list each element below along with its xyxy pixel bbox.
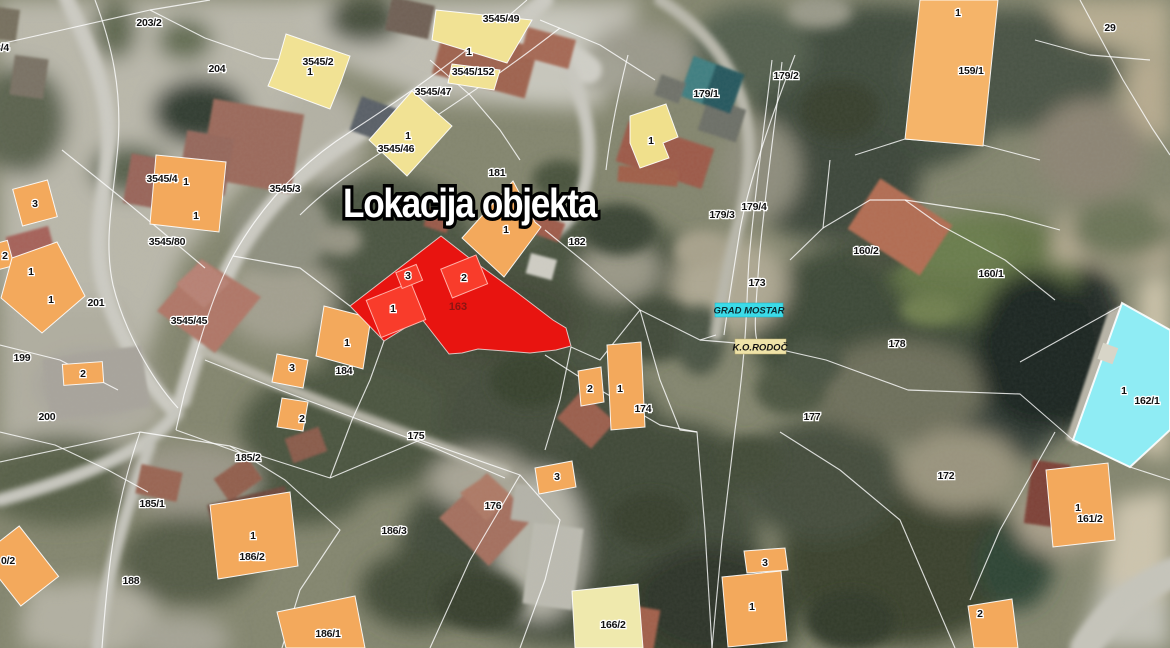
svg-text:185/2: 185/2 [235, 452, 261, 464]
svg-text:1: 1 [749, 601, 755, 613]
svg-text:177: 177 [804, 411, 821, 423]
svg-text:188: 188 [123, 575, 140, 587]
svg-text:3/4: 3/4 [0, 42, 9, 54]
svg-text:1: 1 [193, 210, 199, 222]
svg-text:1: 1 [48, 294, 54, 306]
svg-text:159/1: 159/1 [958, 65, 984, 77]
svg-text:2: 2 [977, 608, 983, 620]
svg-text:3545/4: 3545/4 [147, 173, 178, 185]
svg-text:3545/46: 3545/46 [378, 143, 415, 155]
svg-text:3545/47: 3545/47 [415, 86, 452, 98]
svg-text:160/2: 160/2 [853, 245, 879, 257]
svg-text:179/1: 179/1 [693, 88, 719, 100]
svg-text:163: 163 [449, 301, 467, 313]
svg-text:2: 2 [587, 383, 593, 395]
svg-text:1: 1 [648, 135, 654, 147]
svg-text:1: 1 [250, 530, 256, 542]
svg-text:3: 3 [762, 557, 768, 569]
svg-text:0/2: 0/2 [1, 555, 15, 567]
svg-text:173: 173 [749, 277, 766, 289]
svg-text:3545/80: 3545/80 [149, 236, 186, 248]
svg-text:3: 3 [554, 471, 560, 483]
svg-text:182: 182 [569, 236, 586, 248]
svg-text:1: 1 [390, 303, 396, 315]
svg-text:1: 1 [307, 66, 313, 78]
svg-text:Lokacija objekta: Lokacija objekta [343, 180, 598, 226]
svg-text:1: 1 [1121, 385, 1127, 397]
svg-text:178: 178 [889, 338, 906, 350]
svg-text:1: 1 [955, 7, 961, 19]
svg-text:3545/3: 3545/3 [270, 183, 301, 195]
svg-text:166/2: 166/2 [600, 619, 626, 631]
svg-text:3545/45: 3545/45 [171, 315, 208, 327]
svg-text:176: 176 [485, 500, 502, 512]
svg-text:200: 200 [39, 411, 56, 423]
svg-text:204: 204 [209, 63, 226, 75]
svg-text:186/2: 186/2 [239, 551, 265, 563]
svg-text:3: 3 [289, 362, 295, 374]
svg-text:185/1: 185/1 [139, 498, 165, 510]
svg-text:172: 172 [938, 470, 955, 482]
svg-text:1: 1 [405, 130, 411, 142]
svg-text:201: 201 [88, 297, 105, 309]
svg-text:162/1: 162/1 [1134, 395, 1160, 407]
svg-text:29: 29 [1104, 22, 1116, 34]
svg-text:203/2: 203/2 [136, 17, 162, 29]
svg-text:3: 3 [405, 270, 411, 282]
svg-text:174: 174 [635, 403, 652, 415]
svg-text:2: 2 [2, 250, 8, 262]
svg-text:160/1: 160/1 [978, 268, 1004, 280]
svg-text:2: 2 [80, 368, 86, 380]
svg-text:175: 175 [408, 430, 425, 442]
svg-text:161/2: 161/2 [1077, 513, 1103, 525]
svg-text:K.O.RODOČ: K.O.RODOČ [733, 342, 788, 354]
svg-text:179/2: 179/2 [773, 70, 799, 82]
svg-text:1: 1 [344, 337, 350, 349]
svg-text:1: 1 [28, 266, 34, 278]
svg-text:181: 181 [489, 167, 506, 179]
svg-text:1: 1 [466, 46, 472, 58]
svg-text:3: 3 [32, 198, 38, 210]
svg-text:3545/49: 3545/49 [483, 13, 520, 25]
svg-text:2: 2 [299, 413, 305, 425]
svg-text:186/3: 186/3 [381, 525, 407, 537]
svg-text:186/1: 186/1 [315, 628, 341, 640]
svg-text:179/3: 179/3 [709, 209, 735, 221]
svg-text:184: 184 [336, 365, 353, 377]
svg-text:179/4: 179/4 [741, 201, 767, 213]
svg-text:2: 2 [461, 272, 467, 284]
svg-text:3545/152: 3545/152 [452, 66, 495, 78]
svg-text:1: 1 [617, 383, 623, 395]
svg-text:1: 1 [183, 176, 189, 188]
svg-text:199: 199 [14, 352, 31, 364]
svg-text:GRAD MOSTAR: GRAD MOSTAR [713, 306, 784, 317]
